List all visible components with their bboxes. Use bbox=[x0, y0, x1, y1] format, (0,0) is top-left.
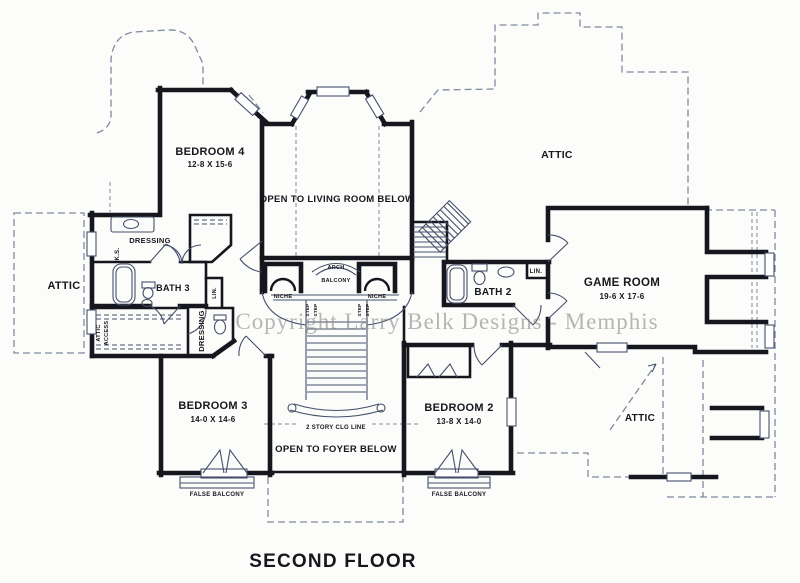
false-balcony-left-label: FALSE BALCONY bbox=[190, 492, 245, 498]
niche-left-label: NICHE bbox=[274, 294, 293, 300]
knee-space-label: K.S. bbox=[115, 248, 121, 261]
two-story-clg-label: 2 STORY CLG LINE bbox=[306, 425, 366, 431]
bedroom3-label: BEDROOM 3 bbox=[178, 400, 247, 412]
attic-left-label: ATTIC bbox=[47, 280, 80, 292]
bedroom4-dims: 12-8 X 15-6 bbox=[187, 160, 232, 169]
arch-label: ARCH bbox=[327, 265, 344, 271]
copyright-watermark: Copyright Larry Belk Designs - Memphis bbox=[235, 309, 658, 334]
balcony-label: BALCONY bbox=[321, 278, 350, 284]
floor-plan-page: BEDROOM 4 12-8 X 15-6 OPEN TO LIVING ROO… bbox=[0, 0, 800, 583]
game-room-dims: 19-6 X 17-6 bbox=[599, 292, 644, 301]
bedroom4-label: BEDROOM 4 bbox=[175, 146, 245, 158]
floor-plan-drawing: BEDROOM 4 12-8 X 15-6 OPEN TO LIVING ROO… bbox=[0, 0, 800, 583]
attic-bottom-right-label: ATTIC bbox=[625, 413, 655, 424]
back-staircase bbox=[413, 201, 471, 257]
attic-access-label-2: ACCESS bbox=[104, 321, 110, 346]
page-title: SECOND FLOOR bbox=[249, 551, 416, 572]
bedroom2-dims: 13-8 X 14-0 bbox=[436, 417, 481, 426]
game-room-label: GAME ROOM bbox=[584, 277, 660, 289]
open-foyer-label: OPEN TO FOYER BELOW bbox=[275, 444, 397, 455]
false-balcony-right-label: FALSE BALCONY bbox=[432, 492, 487, 498]
dressing-lower-label: DRESSING bbox=[197, 310, 206, 352]
niche-right-label: NICHE bbox=[368, 294, 387, 300]
bath2-label: BATH 2 bbox=[474, 287, 511, 298]
attic-access-label-1: ATTIC bbox=[96, 324, 102, 341]
linen-right-label: LIN. bbox=[530, 269, 543, 275]
open-living-label: OPEN TO LIVING ROOM BELOW bbox=[260, 194, 415, 205]
attic-top-right-label: ATTIC bbox=[541, 149, 573, 161]
bath3-label: BATH 3 bbox=[156, 283, 190, 293]
linen-left-label: LIN. bbox=[212, 287, 218, 299]
bedroom2-label: BEDROOM 2 bbox=[424, 402, 493, 414]
dressing-upper-label: DRESSING bbox=[129, 236, 171, 245]
false-balconies bbox=[180, 477, 490, 488]
bedroom3-dims: 14-0 X 14-6 bbox=[190, 415, 235, 424]
